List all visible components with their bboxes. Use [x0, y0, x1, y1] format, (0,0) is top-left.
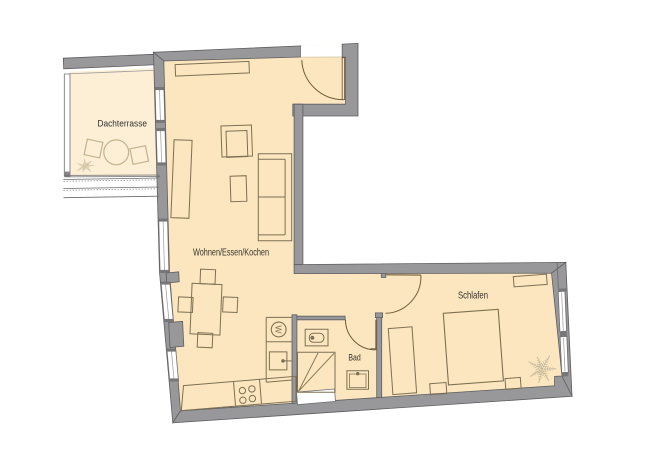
svg-text:W: W [274, 325, 284, 334]
svg-text:Dachterrasse: Dachterrasse [98, 118, 148, 129]
svg-text:Schlafen: Schlafen [458, 290, 488, 301]
svg-text:Wohnen/Essen/Kochen: Wohnen/Essen/Kochen [193, 248, 269, 259]
svg-text:Bad: Bad [348, 353, 360, 364]
